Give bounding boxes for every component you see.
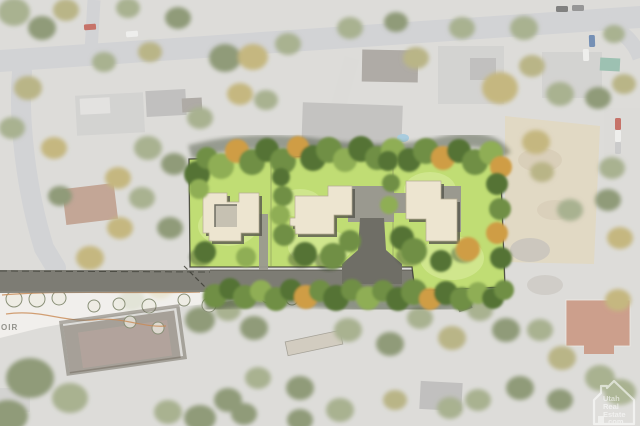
site-trees-interior-shape bbox=[270, 205, 290, 225]
site-trees-interior-shape bbox=[273, 224, 295, 246]
site-tree-row-bottom-shape bbox=[494, 280, 514, 300]
site-trees-interior-shape bbox=[486, 222, 508, 244]
watermark-text: .com bbox=[606, 417, 624, 426]
site-trees-interior-shape bbox=[273, 186, 293, 206]
site-trees-interior-shape bbox=[382, 174, 400, 192]
site-trees-interior-shape bbox=[380, 196, 398, 214]
plan-trees-shape bbox=[178, 294, 190, 306]
site-trees-interior-shape bbox=[194, 241, 216, 263]
site-trees-interior-shape bbox=[486, 173, 508, 195]
site-trees-interior-shape bbox=[489, 198, 511, 220]
site-plan-canvas: OIR bbox=[0, 0, 640, 426]
site-trees-interior-shape bbox=[293, 242, 317, 266]
plan-trees-shape bbox=[88, 300, 100, 312]
site-trees-interior-shape bbox=[430, 250, 452, 272]
plan-label: OIR bbox=[1, 323, 18, 332]
site-trees-interior-shape bbox=[272, 168, 290, 186]
site-trees-interior-shape bbox=[401, 238, 427, 264]
site-trees-interior-shape bbox=[490, 247, 512, 269]
site-trees-interior-shape bbox=[378, 151, 398, 171]
plan-trees-shape bbox=[113, 298, 125, 310]
site-trees-interior-shape bbox=[339, 230, 361, 252]
courtyard bbox=[215, 205, 237, 227]
aerial-site-plan-image: OIR bbox=[0, 0, 640, 426]
site-trees-interior-shape bbox=[189, 179, 209, 199]
site-trees-interior-shape bbox=[456, 237, 480, 261]
site-trees-interior-shape bbox=[236, 247, 256, 267]
plan-trees-shape bbox=[152, 322, 164, 334]
